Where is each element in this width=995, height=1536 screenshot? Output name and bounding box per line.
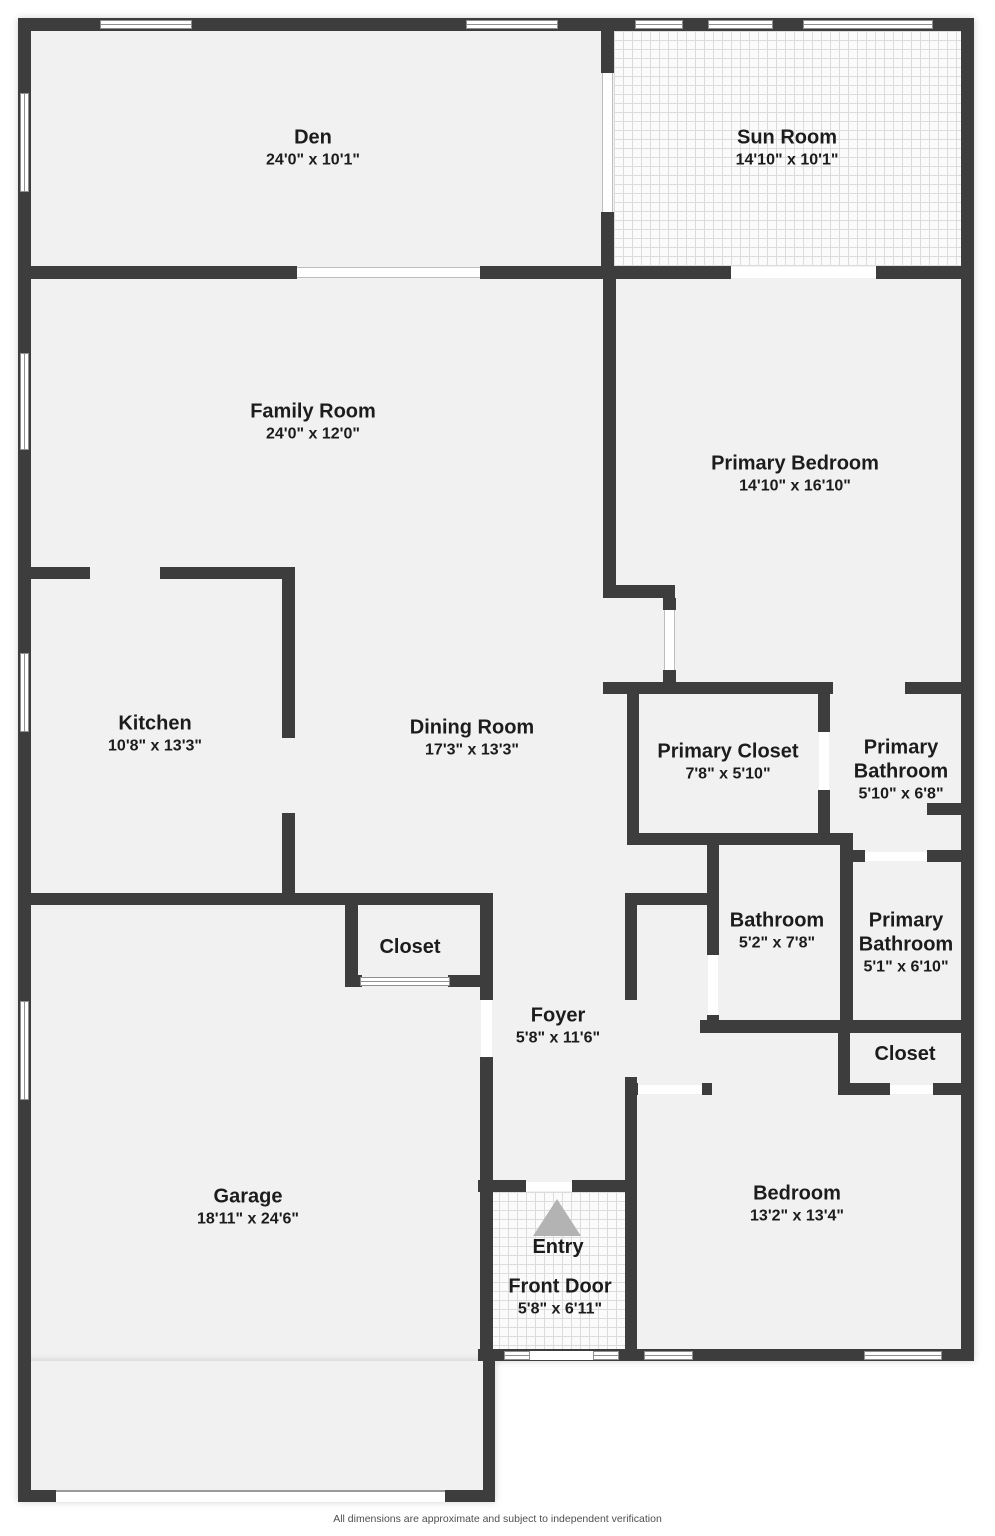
wall — [18, 18, 31, 1502]
wall — [160, 567, 292, 579]
wall — [18, 1490, 58, 1502]
door-opening — [708, 955, 718, 1015]
room-dims: 10'8" x 13'3" — [108, 736, 202, 757]
garage-door — [56, 1490, 445, 1502]
room-name: Kitchen — [108, 712, 202, 736]
wall — [625, 893, 710, 905]
wall — [625, 1083, 638, 1095]
wall — [282, 813, 295, 905]
room-name: Dining Room — [410, 716, 534, 740]
room-name: Closet — [379, 935, 440, 959]
wall — [18, 266, 297, 279]
room-name: Foyer — [516, 1004, 600, 1028]
room-label-den: Den 24'0" x 10'1" — [266, 126, 360, 171]
floor-garage — [18, 1361, 495, 1502]
room-name: Bathroom — [730, 909, 824, 933]
wall — [572, 1180, 625, 1192]
wall — [838, 1032, 850, 1083]
room-name: Entry — [532, 1235, 583, 1259]
room-dims: 14'10" x 10'1" — [736, 150, 839, 171]
wall — [627, 833, 845, 845]
floor-plan: Den 24'0" x 10'1" Sun Room 14'10" x 10'1… — [0, 0, 995, 1536]
room-label-garage: Garage 18'11" x 24'6" — [197, 1185, 299, 1230]
wall — [601, 18, 614, 73]
room-label-entry: Entry — [532, 1235, 583, 1259]
wall — [480, 893, 493, 1000]
wall — [933, 1083, 974, 1095]
window — [803, 20, 933, 29]
room-label-primary-bathroom-2: Primary Bathroom 5'1" x 6'10" — [843, 909, 969, 978]
wall — [625, 902, 637, 1000]
door-opening — [890, 1085, 933, 1094]
door-opening — [664, 610, 675, 670]
window — [20, 93, 29, 192]
wall — [603, 682, 833, 694]
window — [466, 20, 558, 29]
window — [864, 1351, 942, 1360]
room-label-front-door: Front Door 5'8" x 6'11" — [508, 1275, 611, 1320]
wall — [282, 567, 295, 738]
door-opening — [481, 1000, 492, 1057]
room-dims: 5'1" x 6'10" — [843, 957, 969, 978]
room-label-primary-closet: Primary Closet 7'8" x 5'10" — [657, 740, 798, 785]
window — [100, 20, 192, 29]
room-dims: 5'2" x 7'8" — [730, 933, 824, 954]
door-opening — [865, 852, 927, 861]
room-label-bedroom: Bedroom 13'2" x 13'4" — [750, 1182, 844, 1227]
room-label-foyer: Foyer 5'8" x 11'6" — [516, 1004, 600, 1049]
door-opening — [297, 267, 480, 278]
room-label-primary-bathroom-1: Primary Bathroom 5'10" x 6'8" — [838, 736, 964, 805]
wall — [663, 598, 676, 610]
room-label-sun-room: Sun Room 14'10" x 10'1" — [736, 126, 839, 171]
door-opening — [602, 73, 613, 212]
wall — [707, 845, 719, 955]
closet-door — [360, 977, 450, 986]
room-dims: 7'8" x 5'10" — [657, 764, 798, 785]
room-label-closet-bedroom: Closet — [874, 1042, 935, 1066]
room-name: Family Room — [250, 400, 376, 424]
wall — [625, 1077, 637, 1361]
room-dims: 18'11" x 24'6" — [197, 1209, 299, 1230]
room-label-family-room: Family Room 24'0" x 12'0" — [250, 400, 376, 445]
door-opening — [819, 732, 829, 790]
room-name: Primary Closet — [657, 740, 798, 764]
disclaimer-text: All dimensions are approximate and subje… — [0, 1513, 995, 1525]
wall — [876, 266, 974, 279]
room-dims: 14'10" x 16'10" — [711, 476, 879, 497]
room-name: Garage — [197, 1185, 299, 1209]
window — [504, 1351, 530, 1360]
wall — [905, 682, 974, 694]
room-label-bathroom: Bathroom 5'2" x 7'8" — [730, 909, 824, 954]
wall — [18, 893, 493, 905]
room-dims: 5'8" x 11'6" — [516, 1028, 600, 1049]
door-opening — [638, 1085, 702, 1094]
room-label-closet-hall: Closet — [379, 935, 440, 959]
window — [644, 1351, 693, 1360]
wall — [480, 1057, 493, 1361]
entry-arrow-icon — [533, 1199, 581, 1236]
wall — [603, 279, 616, 593]
window — [20, 653, 29, 732]
door-opening — [731, 267, 876, 278]
room-label-dining-room: Dining Room 17'3" x 13'3" — [410, 716, 534, 761]
room-name: Sun Room — [736, 126, 839, 150]
floor-plan-page: Den 24'0" x 10'1" Sun Room 14'10" x 10'1… — [0, 0, 995, 1536]
room-dims: 17'3" x 13'3" — [410, 740, 534, 761]
room-dims: 5'8" x 6'11" — [508, 1299, 611, 1320]
room-label-primary-bedroom: Primary Bedroom 14'10" x 16'10" — [711, 452, 879, 497]
window — [20, 353, 29, 450]
wall — [603, 585, 675, 598]
wall — [345, 900, 358, 987]
wall — [18, 567, 90, 579]
room-dims: 24'0" x 10'1" — [266, 150, 360, 171]
wall — [702, 1083, 712, 1095]
wall — [927, 850, 974, 862]
wall — [838, 1083, 890, 1095]
window — [593, 1351, 619, 1360]
wall — [601, 212, 614, 279]
wall — [818, 694, 830, 732]
room-name: Primary Bathroom — [838, 736, 964, 784]
wall — [627, 694, 639, 843]
room-dims: 13'2" x 13'4" — [750, 1206, 844, 1227]
room-name: Bedroom — [750, 1182, 844, 1206]
room-name: Front Door — [508, 1275, 611, 1299]
room-name: Primary Bedroom — [711, 452, 879, 476]
window — [635, 20, 683, 29]
window — [708, 20, 773, 29]
room-name: Den — [266, 126, 360, 150]
door-opening — [526, 1182, 572, 1191]
room-dims: 24'0" x 12'0" — [250, 424, 376, 445]
room-dims: 5'10" x 6'8" — [838, 784, 964, 805]
wall — [927, 803, 974, 815]
wall — [478, 1180, 526, 1192]
room-name: Primary Bathroom — [843, 909, 969, 957]
wall — [483, 1361, 495, 1501]
window — [20, 1001, 29, 1100]
wall — [700, 1020, 974, 1033]
room-label-kitchen: Kitchen 10'8" x 13'3" — [108, 712, 202, 757]
room-name: Closet — [874, 1042, 935, 1066]
front-door-opening — [530, 1351, 593, 1360]
